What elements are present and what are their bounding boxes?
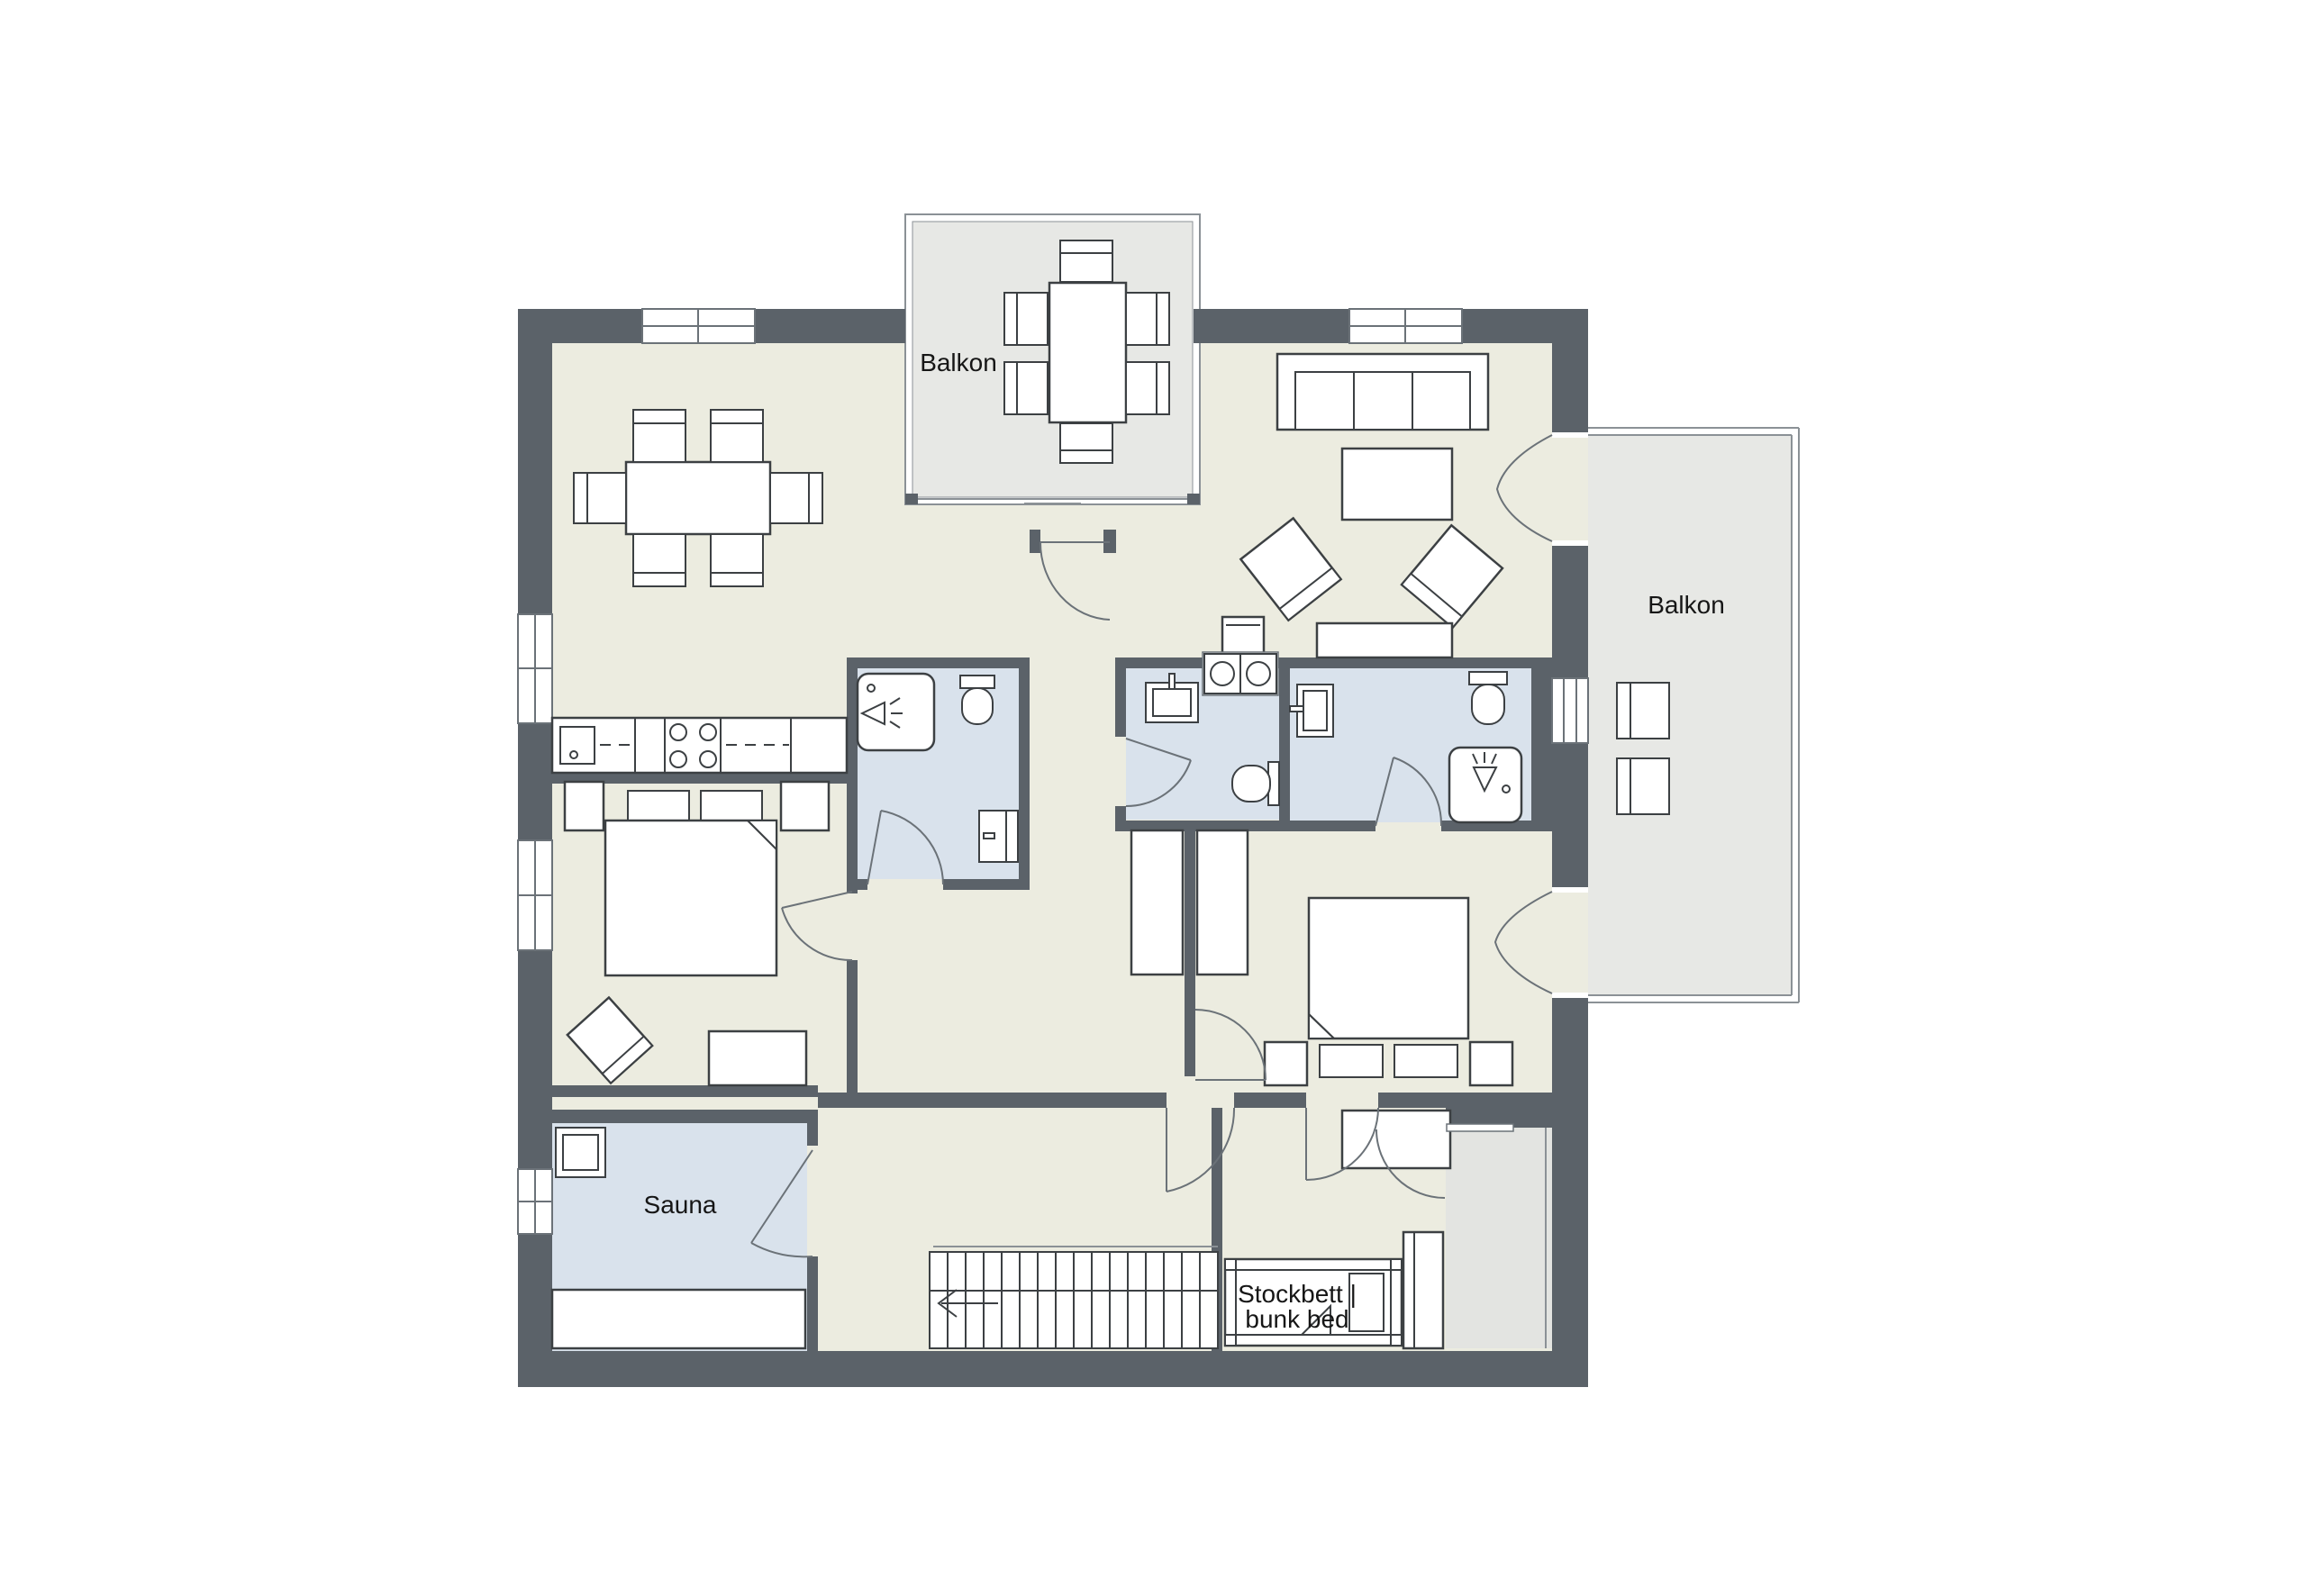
dining-chair [633,410,685,462]
threshold [1552,432,1588,438]
nightstand [1265,1042,1307,1085]
balcony-chair-right-2 [1126,362,1169,414]
wall-hall-bottom-a [818,1093,1167,1108]
wall-bedroom1-bottom [552,1085,818,1097]
utility-threshold [1447,1124,1513,1131]
window-top-1 [642,309,755,343]
wc-toilet [1232,762,1279,805]
window-left-2 [518,840,552,950]
balcony-right-label: Balkon [1648,591,1725,619]
kitchen-counter [552,718,847,773]
balcony-chair-top [1060,240,1112,282]
balcony-right-chair-1 [1617,683,1669,739]
wall-bathroom1-bottom-b [943,879,1030,890]
wall-bathroom1-right [1019,657,1030,890]
staircase [930,1247,1218,1348]
nightstand [781,782,829,830]
wall-bathroom1-top [847,657,1030,668]
nightstand [1470,1042,1512,1085]
radiator [979,811,1018,862]
threshold [1552,887,1588,893]
wall-stub-corridor-left [1030,530,1040,553]
balcony-stub-left [905,494,918,504]
window-left-3 [518,1169,552,1234]
balcony-stub-right [1187,494,1200,504]
opening-living-balcony [1552,437,1588,541]
wall-wc-left-a [1115,657,1126,737]
balcony-chair-right-1 [1126,293,1169,345]
double-bed-2 [1309,898,1468,1038]
floor-plan-page: Balkon Balkon [0,0,2306,1596]
wall-bathroom2-bottom-a [1290,821,1375,831]
balcony-chair-left-2 [1004,362,1048,414]
wall-wc-right [1279,657,1290,830]
bedroom1-desk [709,1031,806,1085]
sofa [1277,354,1488,430]
wall-bottom [518,1351,1588,1387]
toilet-1 [960,676,994,724]
wall-wc-top-a [1115,657,1204,668]
dining-chair [711,534,763,586]
threshold [1552,540,1588,546]
coffee-table [1342,449,1452,520]
side-table [1222,617,1264,653]
bathroom2-sink [1290,685,1333,737]
wall-hall-bedroom2 [1185,830,1195,1076]
balcony-top: Balkon [905,214,1200,504]
dining-chair [633,534,685,586]
bunkroom-table [1342,1111,1450,1168]
dryer [1240,654,1276,694]
wall-sauna-top [552,1110,818,1123]
window-top-2 [1349,309,1462,343]
opening-bedroom2-balcony [1552,892,1588,993]
floor-plan: Balkon Balkon [0,0,2306,1596]
nightstand [565,782,604,830]
kitchen-sink [560,727,595,764]
bunk-bed-label-line2: bunk bed [1245,1305,1348,1333]
double-bed-1 [605,821,776,975]
balcony-chair-left-1 [1004,293,1048,345]
wall-hall-bottom-b [1234,1093,1306,1108]
dining-chair [711,410,763,462]
sauna-label: Sauna [644,1191,717,1219]
threshold [1552,993,1588,998]
balcony-right: Balkon [1588,428,1799,1002]
wall-sauna-right-a [807,1110,818,1146]
wall-utility-top [1446,1093,1552,1128]
wardrobe-hall [1131,830,1183,975]
closet-wardrobe [1403,1232,1443,1348]
sideboard [1317,623,1452,657]
wall-bathroom2-shaft [1531,668,1552,831]
wardrobe-bedroom2 [1197,830,1248,975]
utility-area-floor [1446,1128,1552,1348]
dining-table [626,462,770,534]
wall-sauna-right-b [807,1256,818,1351]
balcony-right-chair-2 [1617,758,1669,814]
pillow [1320,1045,1383,1077]
dining-chair [574,473,626,523]
kitchen [552,718,847,773]
window-left-1 [518,614,552,723]
wall-hall-bottom-c [1378,1093,1446,1108]
pillow [701,791,762,821]
shower-2 [1449,748,1521,822]
wall-bedroom1-right-b [847,960,858,1093]
balcony-table [1049,283,1126,422]
toilet-2 [1469,672,1507,724]
pillow [1394,1045,1457,1077]
washing-machine [1204,654,1240,694]
window-bathroom2 [1552,678,1588,743]
bunk-bed-label-line1: Stockbett | [1238,1280,1357,1308]
wall-bathroom1-bottom-a [847,879,867,890]
dining-chair [770,473,822,523]
balcony-top-label: Balkon [920,349,997,376]
wall-bathroom1-left [847,657,858,890]
sauna-bench [552,1290,805,1348]
sauna-stove [556,1128,605,1177]
wall-wet-top [1276,657,1552,668]
balcony-chair-bottom [1060,423,1112,463]
pillow [628,791,689,821]
